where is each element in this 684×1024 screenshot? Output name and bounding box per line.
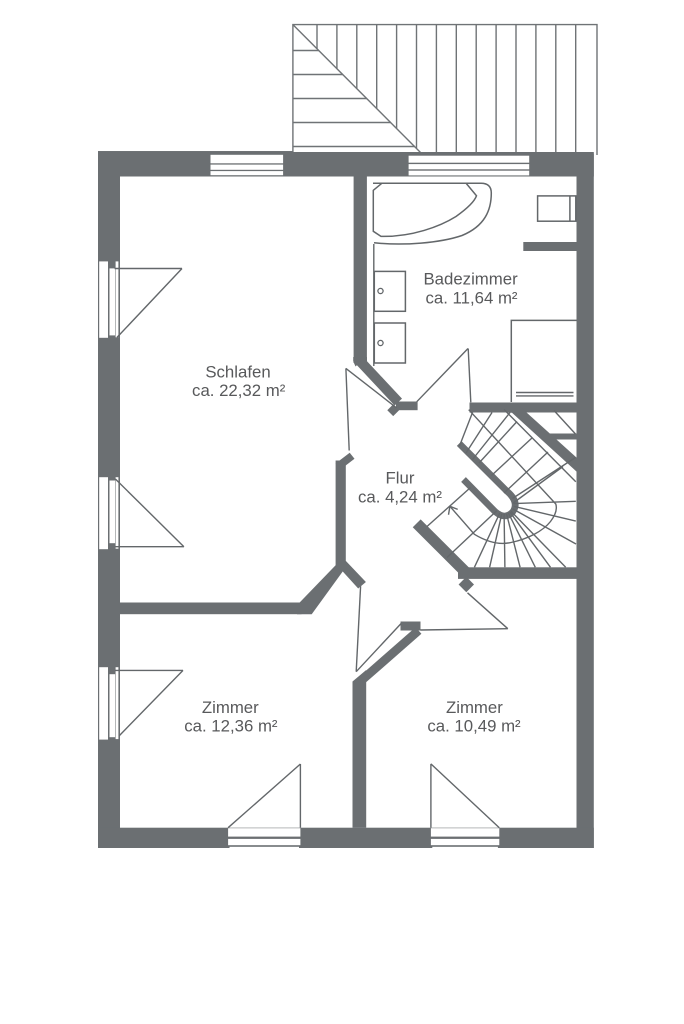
svg-text:ca. 10,49 m²: ca. 10,49 m² [427,717,521,736]
svg-text:Badezimmer: Badezimmer [423,270,518,289]
svg-text:Flur: Flur [386,469,415,488]
svg-text:ca. 11,64 m²: ca. 11,64 m² [425,289,517,308]
svg-text:Schlafen: Schlafen [205,363,270,382]
svg-text:Zimmer: Zimmer [202,698,259,717]
svg-text:Zimmer: Zimmer [446,698,503,717]
svg-text:ca. 22,32 m²: ca. 22,32 m² [192,381,286,400]
svg-text:ca. 12,36 m²: ca. 12,36 m² [184,717,278,736]
svg-text:ca. 4,24 m²: ca. 4,24 m² [358,488,442,507]
